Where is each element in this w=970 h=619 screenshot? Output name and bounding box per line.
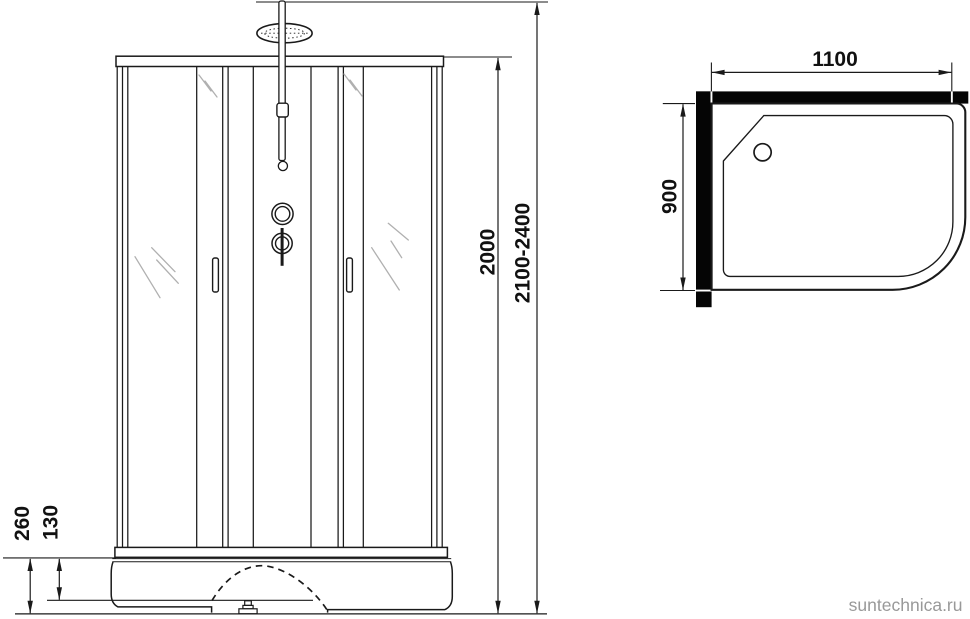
tray-skirt-left bbox=[111, 562, 211, 613]
wall-slit-bottom bbox=[696, 290, 712, 292]
wall-top bbox=[696, 91, 968, 103]
top-view: 1100 900 bbox=[658, 48, 968, 307]
door-handle-right bbox=[347, 258, 353, 292]
rail-end-cap bbox=[278, 161, 287, 170]
arrowhead-260-up bbox=[28, 558, 33, 571]
drain-trap bbox=[239, 601, 257, 614]
dimension-total-height: 2100-2400 bbox=[512, 2, 540, 613]
dim-label-2100-2400: 2100-2400 bbox=[512, 203, 535, 303]
drain-access-arc-dashed bbox=[212, 566, 327, 610]
upper-knob-inner bbox=[275, 207, 290, 222]
drain-trap-base bbox=[239, 609, 257, 614]
dim-label-130: 130 bbox=[40, 505, 63, 540]
shower-riser-pipe bbox=[279, 1, 285, 161]
wall-slit-left bbox=[711, 91, 713, 103]
drain-trap-neck bbox=[245, 601, 252, 606]
arrowhead-900-down bbox=[680, 278, 685, 291]
door-handle-left bbox=[213, 258, 219, 292]
cabin-bottom-rail bbox=[115, 547, 448, 557]
dim-label-2000: 2000 bbox=[477, 229, 500, 276]
arrowhead-900-up bbox=[680, 104, 685, 117]
arrowhead-total-up bbox=[534, 2, 539, 15]
dimension-tray-step-height: 130 bbox=[40, 505, 63, 600]
watermark-text: suntechnica.ru bbox=[849, 595, 963, 615]
arrowhead-2000-up bbox=[495, 57, 500, 70]
drawing-canvas: 260 130 2000 2100-2400 bbox=[0, 0, 970, 619]
wall-slit-right bbox=[951, 91, 953, 103]
arrowhead-total-down bbox=[534, 601, 539, 614]
arrowhead-130-down bbox=[57, 587, 62, 600]
dim-label-900: 900 bbox=[658, 179, 681, 214]
glass-shine-marks bbox=[135, 74, 408, 298]
shine-right-panel bbox=[372, 223, 409, 290]
tray-skirt-right bbox=[328, 562, 453, 613]
dimension-cabin-height: 2000 bbox=[477, 57, 501, 613]
front-view: 260 130 2000 2100-2400 bbox=[3, 1, 548, 614]
shine-left-door bbox=[199, 75, 217, 97]
wall-left bbox=[696, 91, 712, 307]
drain-hole bbox=[754, 144, 771, 161]
mixer-controls bbox=[272, 203, 293, 266]
dimension-width: 1100 bbox=[711, 48, 951, 91]
arrowhead-2000-down bbox=[495, 601, 500, 614]
arrowhead-1100-right bbox=[939, 70, 952, 75]
shine-right-door bbox=[344, 74, 362, 96]
dim-label-1100: 1100 bbox=[812, 48, 858, 71]
dim-label-260: 260 bbox=[11, 506, 34, 541]
arrowhead-1100-left bbox=[712, 70, 725, 75]
tray-rim-lines bbox=[112, 559, 451, 562]
rail-slider bbox=[277, 103, 288, 117]
shower-cabin-diagram: 260 130 2000 2100-2400 bbox=[0, 0, 970, 619]
shine-left-panel bbox=[135, 248, 178, 298]
shower-tray-front bbox=[47, 562, 452, 614]
arrowhead-130-up bbox=[57, 558, 62, 571]
arrowhead-260-down bbox=[28, 601, 33, 614]
dimension-depth: 900 bbox=[658, 104, 695, 291]
dimension-tray-height: 260 bbox=[11, 506, 34, 614]
